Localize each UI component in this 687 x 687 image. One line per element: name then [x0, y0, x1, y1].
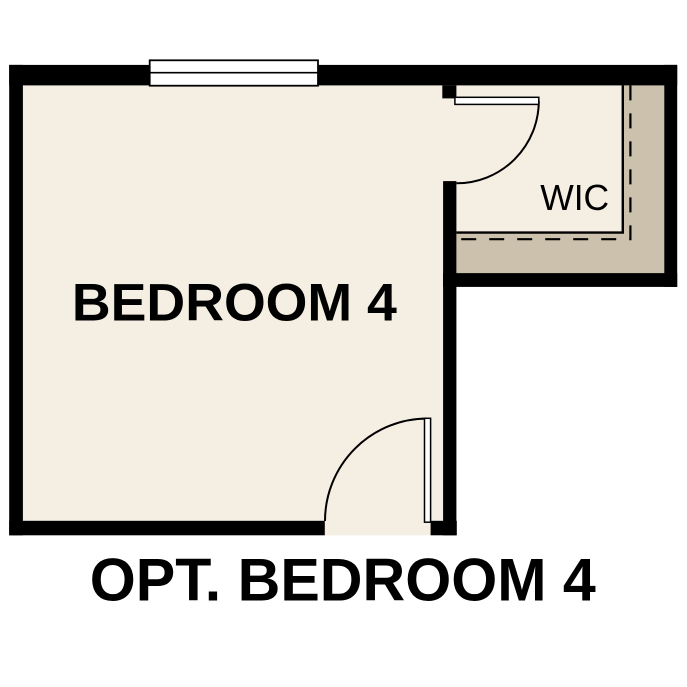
svg-text:WIC: WIC — [540, 177, 609, 218]
svg-text:OPT. BEDROOM 4: OPT. BEDROOM 4 — [90, 546, 596, 614]
svg-text:BEDROOM 4: BEDROOM 4 — [72, 274, 398, 333]
